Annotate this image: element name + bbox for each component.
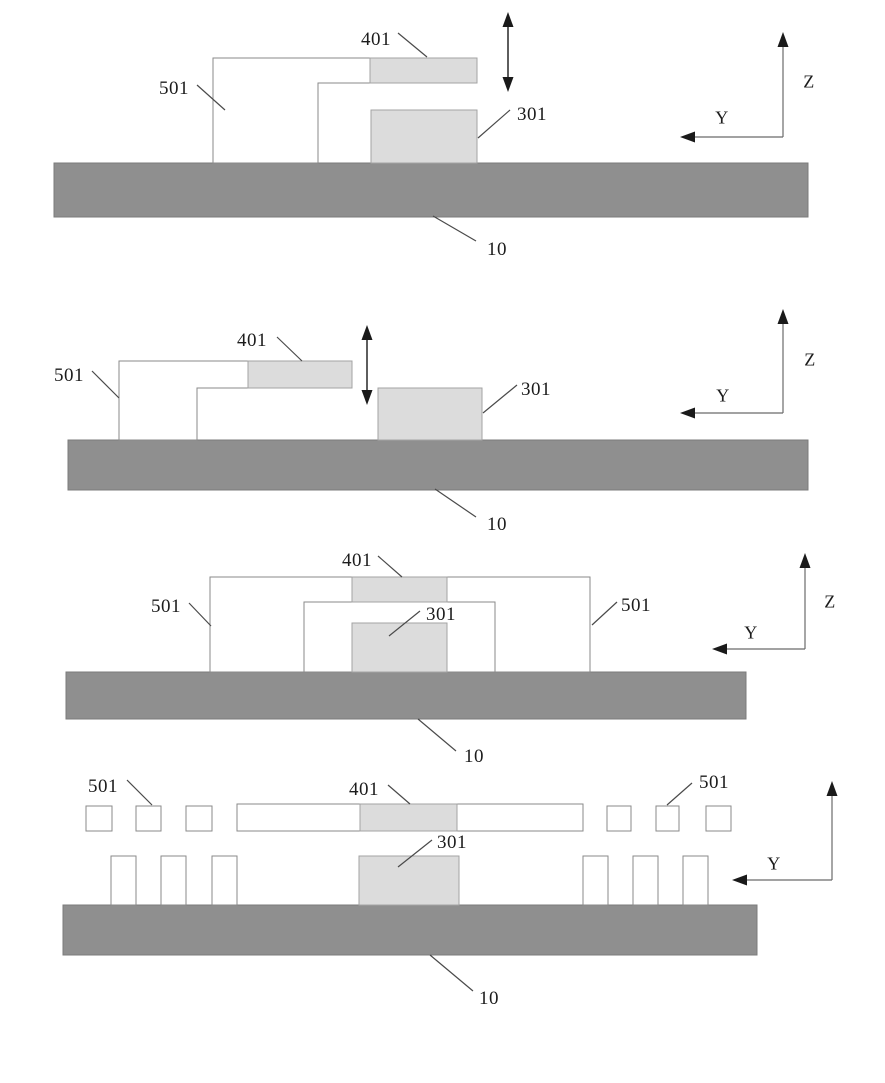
beam-401-panel2	[248, 361, 352, 388]
label-501-panel2: 501	[54, 365, 84, 387]
z-axis-arrowhead	[800, 553, 811, 568]
label-501-right-panel4: 501	[699, 772, 729, 794]
label-301-panel4: 301	[437, 832, 467, 854]
substrate-10-panel4	[63, 905, 757, 955]
label-10-panel2: 10	[487, 514, 507, 536]
axes-panel1	[680, 32, 789, 143]
step-structure-501-panel1	[213, 58, 370, 163]
motion-arrowhead-down	[362, 390, 373, 405]
leader-501-right-panel3	[592, 602, 617, 625]
post-lower-right-2	[633, 856, 658, 905]
leader-10-panel3	[418, 719, 456, 751]
motion-double-arrow-panel2	[362, 325, 373, 405]
axes-panel2	[680, 309, 789, 419]
y-axis-arrowhead	[732, 875, 747, 886]
y-axis-label-panel1: Y	[715, 108, 729, 129]
substrate-10-panel3	[66, 672, 746, 719]
leader-401-panel1	[398, 33, 427, 57]
patent-figure-page: 401 501 301 10 Z Y 401 501 301 10 Z Y 40…	[0, 0, 885, 1083]
segment-501-upper-left-3	[186, 806, 212, 831]
leader-501-right-panel4	[667, 783, 692, 805]
z-axis-label-panel2: Z	[804, 350, 816, 371]
panel-2	[68, 309, 808, 517]
leader-401-panel4	[388, 785, 410, 804]
leader-301-panel2	[483, 385, 517, 413]
segment-501-upper-left-1	[86, 806, 112, 831]
axes-panel3	[712, 553, 811, 655]
z-axis-label-panel3: Z	[824, 592, 836, 613]
label-401-panel1: 401	[361, 29, 391, 51]
label-10-panel3: 10	[464, 746, 484, 768]
block-301-panel2	[378, 388, 482, 440]
label-501-panel1: 501	[159, 78, 189, 100]
leader-501-left-panel4	[127, 780, 152, 805]
post-lower-left-2	[161, 856, 186, 905]
z-axis-arrowhead	[778, 309, 789, 324]
label-401-panel3: 401	[342, 550, 372, 572]
leader-10-panel2	[435, 489, 476, 517]
substrate-10-panel2	[68, 440, 808, 490]
segment-501-upper-right-2	[656, 806, 679, 831]
label-301-panel1: 301	[517, 104, 547, 126]
y-axis-label-panel2: Y	[716, 386, 730, 407]
leader-301-panel1	[478, 110, 510, 138]
leader-501-left-panel3	[189, 603, 211, 626]
z-axis-label-panel1: Z	[803, 72, 815, 93]
post-lower-left-1	[111, 856, 136, 905]
label-501-left-panel3: 501	[151, 596, 181, 618]
block-301-panel1	[371, 110, 477, 163]
motion-arrowhead-up	[503, 12, 514, 27]
block-301-panel4	[359, 856, 459, 905]
panel-3	[66, 553, 811, 751]
leader-401-panel3	[378, 556, 402, 577]
label-401-panel2: 401	[237, 330, 267, 352]
y-axis-arrowhead	[712, 644, 727, 655]
post-lower-right-3	[683, 856, 708, 905]
diagram-canvas	[0, 0, 885, 1083]
beam-401-panel4	[360, 804, 457, 831]
label-501-right-panel3: 501	[621, 595, 651, 617]
motion-double-arrow-panel1	[503, 12, 514, 92]
label-301-panel3: 301	[426, 604, 456, 626]
label-10-panel4: 10	[479, 988, 499, 1010]
z-axis-arrowhead	[778, 32, 789, 47]
motion-arrowhead-up	[362, 325, 373, 340]
y-axis-arrowhead	[680, 408, 695, 419]
substrate-10-panel1	[54, 163, 808, 217]
step-structure-501-panel2	[119, 361, 248, 440]
y-axis-arrowhead	[680, 132, 695, 143]
label-301-panel2: 301	[521, 379, 551, 401]
label-401-panel4: 401	[349, 779, 379, 801]
beam-401-panel3	[352, 577, 447, 602]
segment-501-upper-left-2	[136, 806, 161, 831]
panel-1	[54, 12, 808, 241]
post-lower-right-1	[583, 856, 608, 905]
leader-10-panel1	[433, 216, 476, 241]
vertical-axis-arrowhead	[827, 781, 838, 796]
label-10-panel1: 10	[487, 239, 507, 261]
y-axis-label-panel3: Y	[744, 623, 758, 644]
panel-4	[63, 780, 838, 991]
leader-501-panel2	[92, 371, 119, 398]
block-301-panel3	[352, 623, 447, 672]
beam-401-panel1	[370, 58, 477, 83]
leader-401-panel2	[277, 337, 302, 361]
leader-10-panel4	[430, 955, 473, 991]
segment-501-upper-right-3	[706, 806, 731, 831]
y-axis-label-panel4: Y	[767, 854, 781, 875]
label-501-left-panel4: 501	[88, 776, 118, 798]
motion-arrowhead-down	[503, 77, 514, 92]
post-lower-left-3	[212, 856, 237, 905]
axes-panel4	[732, 781, 838, 886]
segment-501-upper-right-1	[607, 806, 631, 831]
